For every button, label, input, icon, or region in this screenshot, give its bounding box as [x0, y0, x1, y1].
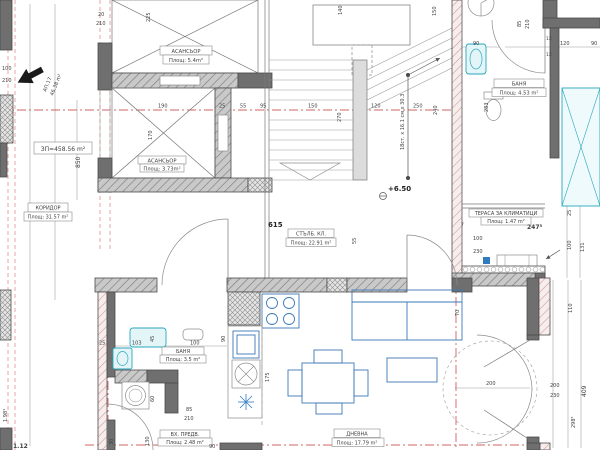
dim-12-b: 12 [546, 52, 552, 58]
bath-top-area: Площ: 4.53 m² [499, 91, 538, 97]
dim-55-axis: 55 [240, 104, 246, 110]
dim-240: 240 [433, 105, 439, 115]
dim-175: 175 [265, 372, 271, 382]
dim-210-top: 210 [96, 21, 106, 27]
dim-190: 190 [158, 104, 168, 110]
right-wall-doors [443, 278, 550, 450]
dim-110: 110 [568, 303, 574, 313]
stair-spine-wall [353, 60, 367, 180]
bath-low-name: БАНЯ [176, 349, 190, 355]
dim-2985: 298⁵ [571, 416, 577, 428]
stair-spec: 18ст. x 16.1 см x 30.3 [400, 94, 406, 150]
duct-shaft [313, 5, 410, 45]
dim-230-ter: 230 [473, 249, 483, 255]
dim-60: 60 [150, 396, 156, 402]
door-arc-entry-1 [162, 219, 228, 285]
terrace-name: ТЕРАСА ЗА КЛИМАТИЦИ [474, 211, 538, 217]
shower-icon [562, 88, 600, 206]
dim-615: 615 [268, 221, 283, 229]
dim-95: 95 [260, 104, 266, 110]
dim-100-ter: 100 [473, 236, 483, 242]
vestibule-name: ВХ. ПРЕДВ. [171, 432, 200, 438]
staircage-name: СТЪЛБ. КЛ. [296, 232, 326, 238]
dim-140: 140 [338, 5, 344, 15]
dim-120-row: 120 [560, 41, 570, 47]
dim-90-a: 90 [473, 41, 479, 47]
dimension-texts: 20 210 225 100 210 850 190 25 55 95 170 … [2, 5, 597, 450]
dim-210-tr: 210 [525, 19, 531, 29]
dim-270: 270 [337, 112, 343, 122]
dim-150-top: 150 [432, 6, 438, 16]
dim-85-tr: 85 [517, 21, 523, 27]
elevator2-name: АСАНСЬОР [147, 158, 176, 164]
light-point-icon [238, 394, 254, 410]
dim-250: 250 [413, 104, 423, 110]
door-arc-entry-2 [407, 235, 457, 285]
corridor-area: Площ: 31.57 m² [28, 215, 69, 221]
living-name: ДНЕВНА [346, 432, 368, 438]
dining-table-icon [288, 350, 368, 414]
terrace-ac: ТЕРАСА ЗА КЛИМАТИЦИ Площ: 1.47 m² [452, 204, 560, 286]
landing-marker [280, 163, 340, 180]
kitchen [228, 292, 299, 425]
built-area-label: ЗП=458.56 m² [41, 146, 86, 153]
dim-170: 170 [148, 130, 154, 140]
dim-90-bottom: 90 [209, 444, 215, 450]
dim-225: 225 [146, 12, 152, 22]
elevator1-name: АСАНСЬОР [171, 49, 200, 55]
elevator1-door [160, 76, 200, 85]
stove-icon [262, 294, 299, 328]
dim-30: 30 [109, 439, 115, 445]
elevator1-area: Площ: 5.4m² [169, 58, 203, 64]
kitchen-sink-icon [232, 360, 260, 388]
french-door-icon [443, 335, 537, 443]
dim-150-stair: 150 [308, 104, 318, 110]
dim-25-r: 25 [567, 210, 573, 216]
dim-283: 283 [484, 102, 490, 112]
bath-top-name: БАНЯ [512, 82, 527, 88]
dim-2475: 247⁵ [527, 224, 543, 231]
dim-7: 7 [461, 222, 464, 228]
dim-103: 103 [132, 341, 142, 347]
living-area: Площ: 17.79 m² [337, 441, 378, 447]
dim-100-left: 100 [2, 66, 12, 72]
dim-70: 70 [455, 310, 461, 316]
sink-icon [466, 44, 486, 74]
dim-850: 850 [75, 156, 82, 168]
elevator2-area: Площ: 3.73m² [143, 166, 180, 172]
toilet-low-icon [183, 329, 203, 340]
coffee-table-icon [387, 358, 437, 382]
corridor: 615 СТЪЛБ. КЛ. Площ: 22.91 m² КОРИДОР Пл… [24, 142, 472, 292]
dim-55-c: 55 [352, 238, 358, 244]
dim-25-b: 25 [99, 341, 105, 347]
apartment-entry-arrow: АП.17 46.38 m² [14, 62, 64, 96]
staircage-area: Площ: 22.91 m² [291, 241, 332, 247]
dim-210-left: 210 [2, 78, 12, 84]
dim-200-r: 200 [550, 383, 560, 389]
dim-409: 409 [581, 385, 588, 397]
corridor-name: КОРИДОР [35, 206, 60, 212]
dim-25-axis: 25 [219, 104, 225, 110]
washing-machine-icon [122, 382, 149, 409]
dim-230-r: 230 [550, 393, 560, 399]
dim-45: 45 [150, 336, 156, 342]
dim-120-stair: 120 [371, 104, 381, 110]
fan-icon [468, 0, 494, 16]
dim-90-b: 90 [591, 41, 597, 47]
floor-plan-drawing: АСАНСЬОР Площ: 5.4m² АСАНСЬОР Площ: 3.73… [0, 0, 600, 450]
bath-low-area: Площ: 3.5 m² [166, 357, 200, 363]
dim-100-r: 100 [567, 240, 573, 250]
ac-outlet-icon [483, 257, 490, 264]
dim-20: 20 [98, 12, 104, 18]
elevator2-door [218, 115, 228, 151]
vestibule-area: Площ: 2.48 m² [166, 440, 204, 446]
dim-131: 131 [580, 242, 586, 252]
dim-198: 1.98¹ [3, 409, 9, 422]
dim-210-v: 210 [184, 416, 194, 422]
dim-90-k: 90 [221, 336, 227, 342]
dim-100-b: 100 [190, 341, 200, 347]
elevator-shaft-1: АСАНСЬОР Площ: 5.4m² [112, 0, 258, 73]
dim-85-v: 85 [186, 407, 192, 413]
dim-130: 130 [145, 436, 151, 446]
apartment-area: 46.38 m² [49, 73, 63, 96]
dim-112: 1.12 [13, 443, 28, 450]
basin-icon [113, 348, 132, 369]
level-mark: +6.50 [388, 185, 411, 193]
floor-plan-canvas: АСАНСЬОР Площ: 5.4m² АСАНСЬОР Площ: 3.73… [0, 0, 600, 450]
terrace-area: Площ: 1.47 m² [487, 219, 525, 225]
living-room: ДНЕВНА Площ: 17.79 m² [288, 290, 462, 447]
elevator-core: АСАНСЬОР Площ: 5.4m² АСАНСЬОР Площ: 3.73… [98, 0, 272, 192]
stair-flight-diagonal [367, 28, 452, 110]
elevator-shaft-2: АСАНСЬОР Площ: 3.73m² [112, 88, 215, 178]
dim-12-a: 12 [546, 36, 552, 42]
sofa-icon [352, 290, 462, 340]
dim-200-door: 200 [486, 381, 496, 387]
